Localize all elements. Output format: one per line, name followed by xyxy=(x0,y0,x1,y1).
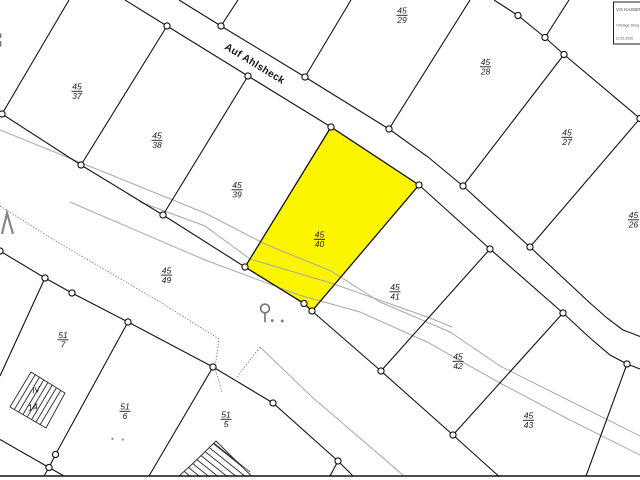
svg-text:29: 29 xyxy=(396,15,407,25)
svg-text:42: 42 xyxy=(453,361,463,371)
svg-text:45: 45 xyxy=(390,282,400,292)
svg-text:37: 37 xyxy=(72,91,82,101)
svg-text:45: 45 xyxy=(562,128,572,138)
svg-text:40: 40 xyxy=(315,239,325,249)
svg-text:6: 6 xyxy=(123,411,128,421)
svg-text:45: 45 xyxy=(315,230,325,240)
svg-text:11.02.2020: 11.02.2020 xyxy=(616,37,634,41)
svg-text:45: 45 xyxy=(397,6,407,16)
svg-text:45: 45 xyxy=(481,57,491,67)
svg-text:43: 43 xyxy=(524,420,534,430)
svg-text:51: 51 xyxy=(58,330,68,340)
svg-text:27: 27 xyxy=(561,137,572,147)
svg-text:45: 45 xyxy=(162,265,172,275)
svg-text:51: 51 xyxy=(221,410,231,420)
svg-text:45: 45 xyxy=(524,411,534,421)
svg-text:41: 41 xyxy=(390,292,400,302)
svg-text:45: 45 xyxy=(152,131,162,141)
svg-text:45: 45 xyxy=(629,210,639,220)
svg-text:VG KAISER: VG KAISER xyxy=(616,7,640,13)
svg-text:7: 7 xyxy=(61,340,66,350)
svg-text:Ortslage Düng: Ortslage Düng xyxy=(616,24,639,28)
svg-text:45: 45 xyxy=(453,352,463,362)
svg-text:28: 28 xyxy=(480,67,491,77)
svg-text:26: 26 xyxy=(628,220,639,230)
svg-text:14: 14 xyxy=(27,401,38,413)
svg-text:38: 38 xyxy=(152,140,162,150)
svg-text:49: 49 xyxy=(162,275,172,285)
svg-text:45: 45 xyxy=(72,82,82,92)
svg-text:39: 39 xyxy=(232,190,242,200)
svg-text:5: 5 xyxy=(224,419,229,429)
svg-text:45: 45 xyxy=(232,180,242,190)
svg-text:51: 51 xyxy=(120,402,130,412)
